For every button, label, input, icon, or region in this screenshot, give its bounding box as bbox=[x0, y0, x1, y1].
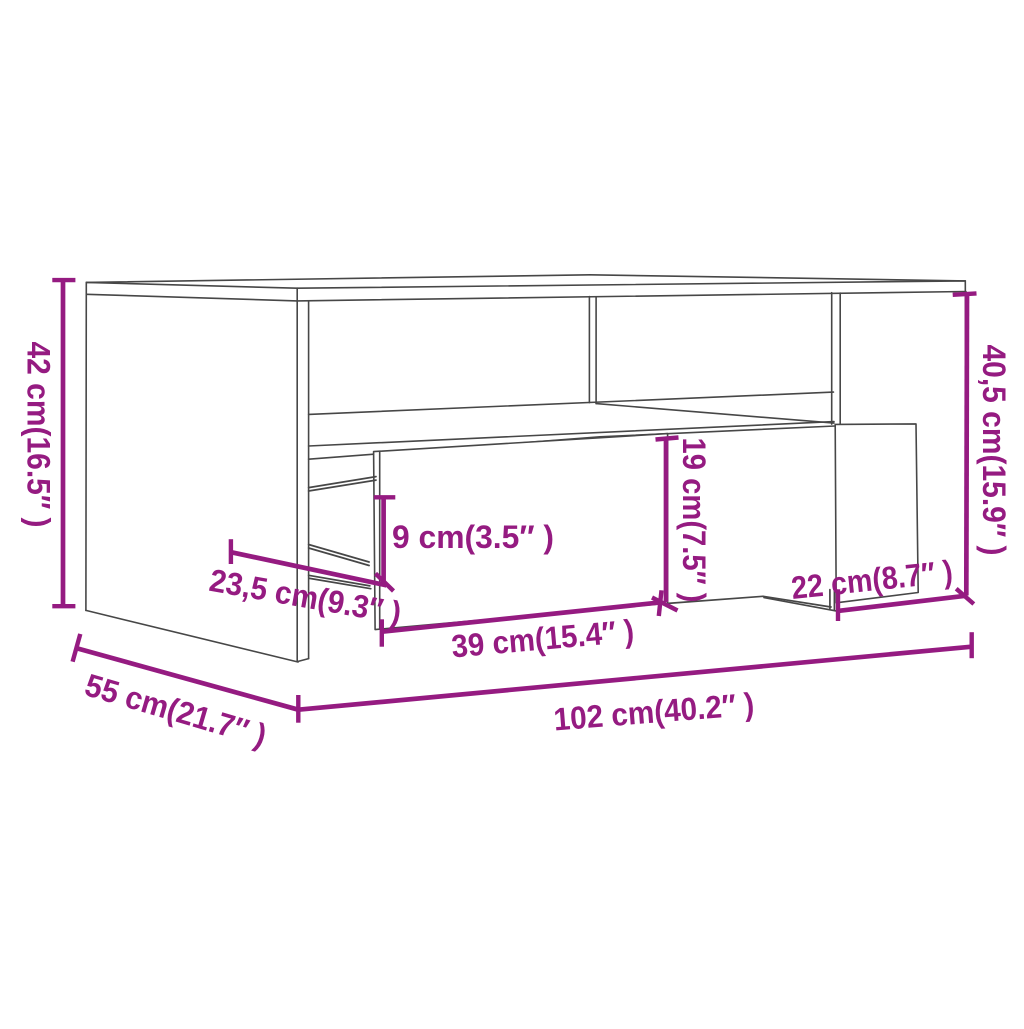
svg-text:19 cm(7.5″ ): 19 cm(7.5″ ) bbox=[676, 438, 712, 603]
svg-text:42 cm(16.5″ ): 42 cm(16.5″ ) bbox=[21, 342, 57, 528]
svg-text:9 cm(3.5″ ): 9 cm(3.5″ ) bbox=[392, 519, 554, 555]
svg-text:40,5 cm(15.9″ ): 40,5 cm(15.9″ ) bbox=[976, 345, 1012, 556]
